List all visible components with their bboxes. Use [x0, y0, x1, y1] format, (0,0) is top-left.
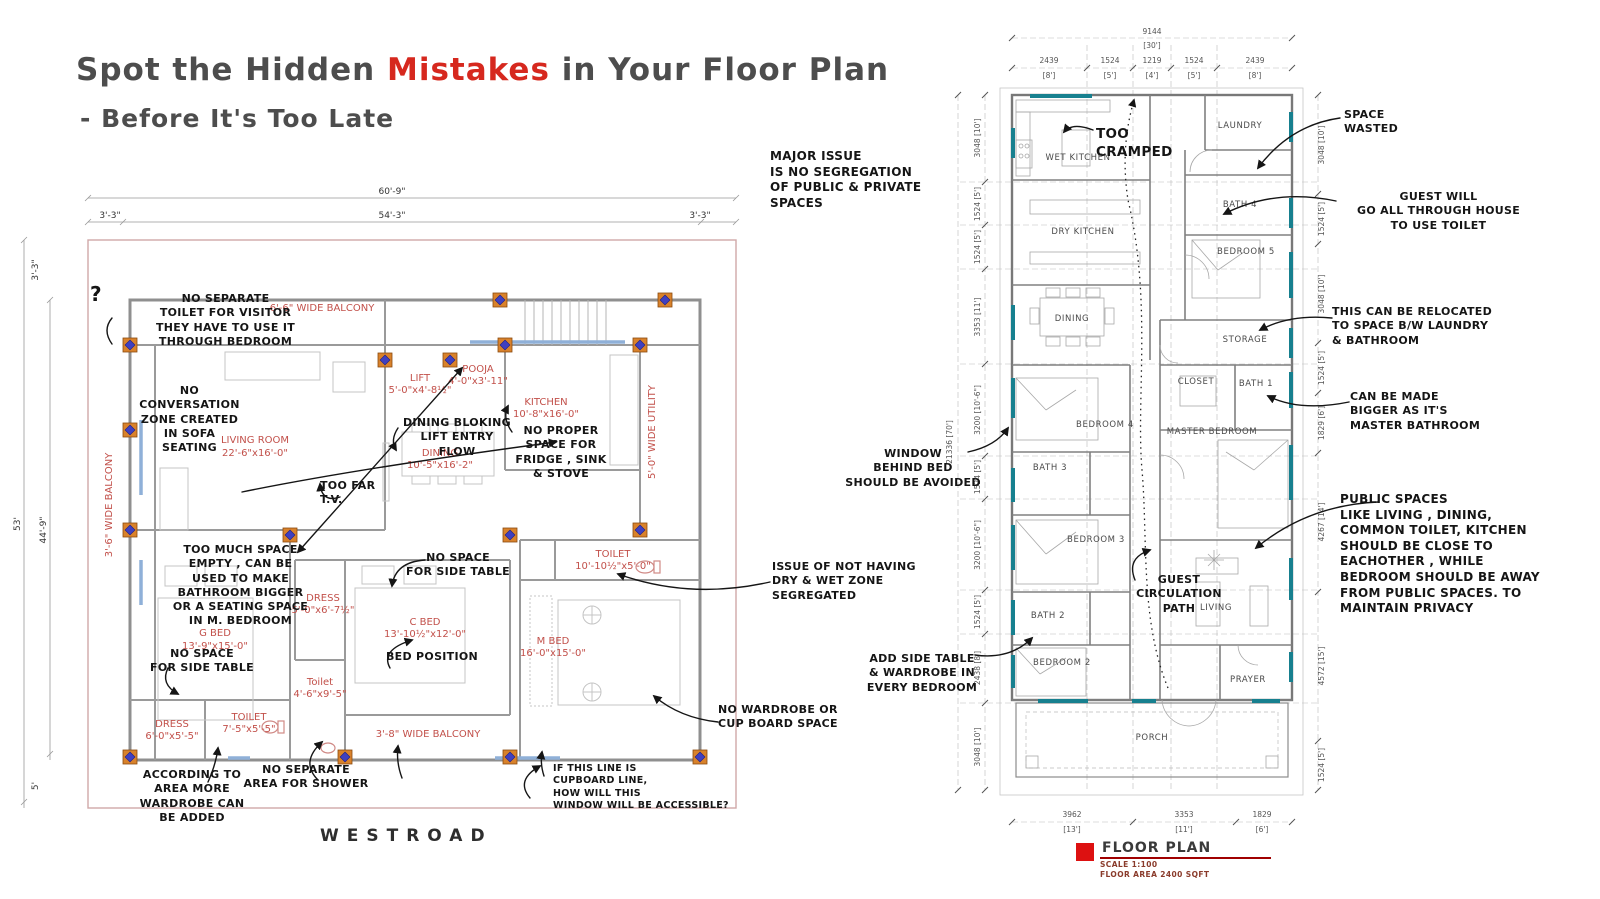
- label-gbed: G BED: [199, 628, 231, 639]
- annotation-relocated: THIS CAN BE RELOCATED TO SPACE B/W LAUND…: [1332, 305, 1522, 348]
- title-highlight: Mistakes: [387, 52, 550, 88]
- label-utility: 5'-0" WIDE UTILITY: [647, 384, 658, 479]
- stairs: [525, 300, 606, 345]
- svg-text:6'-0"x5'-5": 6'-0"x5'-5": [145, 731, 198, 742]
- annotation-dry-wet-zone: ISSUE OF NOT HAVING DRY & WET ZONE SEGRE…: [772, 560, 932, 603]
- dim-side-bottom: 5': [31, 782, 41, 790]
- legend-scale: SCALE 1:100: [1100, 860, 1271, 869]
- svg-text:1524: 1524: [1100, 56, 1119, 65]
- svg-text:3353: 3353: [1174, 810, 1193, 819]
- label-toilet2: TOILET: [231, 712, 268, 723]
- room-storage: STORAGE: [1223, 335, 1268, 345]
- room-porch: PORCH: [1136, 733, 1169, 743]
- annotation-no-side-table-cbed: NO SPACE FOR SIDE TABLE: [398, 551, 518, 580]
- svg-text:1524 [5']: 1524 [5']: [1317, 202, 1326, 236]
- room-bath1: BATH 1: [1239, 379, 1273, 389]
- svg-text:3048 [10']: 3048 [10']: [973, 118, 982, 157]
- dim-top-left: 3'-3": [99, 211, 120, 221]
- room-bedroom4: BEDROOM 4: [1076, 420, 1134, 430]
- svg-text:16'-0"x15'-0": 16'-0"x15'-0": [520, 648, 586, 659]
- dim-side-inner: 44'-9": [39, 516, 49, 543]
- legend-area: FLOOR AREA 2400 SQFT: [1100, 870, 1271, 879]
- annotation-too-much-space: TOO MUCH SPACE EMPTY , CAN BE USED TO MA…: [138, 543, 343, 629]
- annotation-too-cramped: TOO CRAMPED: [1096, 126, 1196, 161]
- room-prayer: PRAYER: [1230, 675, 1266, 685]
- annotation-guest-toilet: GUEST WILL GO ALL THROUGH HOUSE TO USE T…: [1336, 190, 1541, 233]
- partition-walls: [130, 300, 700, 760]
- floor-plan-poster: 60'-9" 3'-3" 54'-3" 3'-3" 53' 44'-9" 3'-…: [0, 0, 1600, 899]
- dim-side-total: 53': [13, 517, 23, 531]
- label-cbed: C BED: [409, 617, 440, 628]
- svg-text:[13']: [13']: [1063, 825, 1081, 834]
- room-laundry: LAUNDRY: [1218, 121, 1263, 131]
- annotation-public-spaces: PUBLIC SPACES LIKE LIVING , DINING, COMM…: [1340, 492, 1560, 617]
- svg-text:[8']: [8']: [1043, 71, 1056, 80]
- room-bath4: BATH 4: [1223, 200, 1257, 210]
- svg-text:1524 [5']: 1524 [5']: [1317, 351, 1326, 385]
- svg-text:2439: 2439: [1039, 56, 1058, 65]
- svg-text:[30']: [30']: [1143, 41, 1161, 50]
- svg-text:3962: 3962: [1062, 810, 1081, 819]
- annotation-space-wasted: SPACE WASTED: [1344, 108, 1439, 137]
- svg-text:13'-10½"x12'-0": 13'-10½"x12'-0": [384, 628, 466, 640]
- svg-text:7'-5"x5'-5": 7'-5"x5'-5": [222, 724, 275, 735]
- svg-text:3048 [10']: 3048 [10']: [973, 727, 982, 766]
- dim-top-right: 3'-3": [689, 211, 710, 221]
- svg-text:3200 [10'-6"]: 3200 [10'-6"]: [973, 520, 982, 570]
- dim-top-total: 60'-9": [378, 187, 405, 197]
- svg-text:1524 [5']: 1524 [5']: [1317, 748, 1326, 782]
- svg-text:1524 [5']: 1524 [5']: [973, 595, 982, 629]
- label-mbed: M BED: [537, 636, 570, 647]
- room-master: MASTER BEDROOM: [1167, 427, 1257, 437]
- svg-text:10'-10½"x5'-0": 10'-10½"x5'-0": [575, 560, 651, 572]
- annotation-cupboard-line: IF THIS LINE IS CUPBOARD LINE, HOW WILL …: [553, 763, 733, 812]
- svg-text:1829 [6']: 1829 [6']: [1317, 406, 1326, 440]
- annotation-guest-circulation: GUEST CIRCULATION PATH: [1122, 573, 1236, 616]
- legend-title: FLOOR PLAN: [1100, 840, 1271, 859]
- svg-text:1829: 1829: [1252, 810, 1271, 819]
- svg-text:1524 [5']: 1524 [5']: [973, 230, 982, 264]
- dim-side-top: 3'-3": [31, 259, 41, 280]
- svg-text:4'-0"x3'-11": 4'-0"x3'-11": [448, 376, 508, 387]
- svg-text:3048 [10']: 3048 [10']: [1317, 125, 1326, 164]
- svg-text:1524: 1524: [1184, 56, 1203, 65]
- svg-text:[4']: [4']: [1146, 71, 1159, 80]
- page-subtitle: - Before It's Too Late: [80, 104, 394, 133]
- label-toilet-small: Toilet: [306, 677, 333, 688]
- annotation-bed-position: BED POSITION: [386, 650, 506, 664]
- annotation-no-shower-area: NO SEPARATE AREA FOR SHOWER: [230, 763, 382, 792]
- svg-text:9144: 9144: [1142, 27, 1161, 36]
- label-kitchen: KITCHEN: [524, 397, 567, 408]
- svg-text:[6']: [6']: [1256, 825, 1269, 834]
- svg-text:[5']: [5']: [1188, 71, 1201, 80]
- annotation-no-side-table-gbed: NO SPACE FOR SIDE TABLE: [138, 647, 266, 676]
- annotation-no-wardrobe: NO WARDROBE OR CUP BOARD SPACE: [718, 703, 868, 732]
- annotation-no-proper-space: NO PROPER SPACE FOR FRIDGE , SINK & STOV…: [506, 424, 616, 481]
- annotation-no-separate-toilet: NO SEPARATE TOILET FOR VISITOR THEY HAVE…: [108, 292, 343, 349]
- svg-text:1524 [5']: 1524 [5']: [973, 187, 982, 221]
- columns: [123, 293, 707, 764]
- svg-text:2439: 2439: [1245, 56, 1264, 65]
- svg-text:3048 [10']: 3048 [10']: [1317, 274, 1326, 313]
- annotation-too-far-tv: TOO FAR T.V.: [320, 479, 400, 508]
- legend-red-square: [1076, 843, 1094, 861]
- room-bedroom5: BEDROOM 5: [1217, 247, 1275, 257]
- room-bath3: BATH 3: [1033, 463, 1067, 473]
- annotation-master-bathroom: CAN BE MADE BIGGER AS IT'S MASTER BATHRO…: [1350, 390, 1505, 433]
- svg-text:3353 [11']: 3353 [11']: [973, 297, 982, 336]
- room-closet: CLOSET: [1178, 377, 1215, 387]
- svg-text:[11']: [11']: [1175, 825, 1193, 834]
- annotation-window-behind-bed: WINDOW BEHIND BED SHOULD BE AVOIDED: [843, 447, 983, 490]
- question-mark: ?: [90, 282, 102, 306]
- caption-westroad: WESTROAD: [320, 826, 493, 846]
- annotation-dining-blocking: DINING BLOKING LIFT ENTRY FLOW: [398, 416, 516, 459]
- svg-text:[8']: [8']: [1249, 71, 1262, 80]
- label-balcony-bottom: 3'-8" WIDE BALCONY: [376, 729, 482, 740]
- page-title: Spot the Hidden Mistakes in Your Floor P…: [76, 52, 889, 88]
- room-bath2: BATH 2: [1031, 611, 1065, 621]
- svg-text:[5']: [5']: [1104, 71, 1117, 80]
- dim-top-mid: 54'-3": [378, 211, 405, 221]
- label-balcony-left: 3'-6" WIDE BALCONY: [104, 452, 115, 558]
- svg-text:4267 [14']: 4267 [14']: [1317, 502, 1326, 541]
- svg-text:3200 [10'-6"]: 3200 [10'-6"]: [973, 385, 982, 435]
- room-bedroom2: BEDROOM 2: [1033, 658, 1091, 668]
- svg-text:1219: 1219: [1142, 56, 1161, 65]
- annotation-major-issue: MAJOR ISSUE IS NO SEGREGATION OF PUBLIC …: [770, 149, 950, 211]
- svg-text:4'-6"x9'-5": 4'-6"x9'-5": [293, 689, 346, 700]
- room-bedroom3: BEDROOM 3: [1067, 535, 1125, 545]
- label-dress2: DRESS: [155, 719, 189, 730]
- annotation-add-side-table: ADD SIDE TABLE & WARDROBE IN EVERY BEDRO…: [846, 652, 998, 695]
- room-dry-kitchen: DRY KITCHEN: [1051, 227, 1114, 237]
- label-toilet-m: TOILET: [595, 549, 632, 560]
- label-pooja: POOJA: [462, 364, 494, 375]
- label-lift: LIFT: [410, 373, 431, 384]
- svg-text:10'-8"x16'-0": 10'-8"x16'-0": [513, 409, 579, 420]
- annotation-no-conversation-zone: NO CONVERSATION ZONE CREATED IN SOFA SEA…: [132, 384, 247, 455]
- floor-plan-legend: FLOOR PLAN SCALE 1:100 FLOOR AREA 2400 S…: [1076, 840, 1271, 879]
- svg-text:4572 [15']: 4572 [15']: [1317, 646, 1326, 685]
- room-dining: DINING: [1055, 314, 1089, 324]
